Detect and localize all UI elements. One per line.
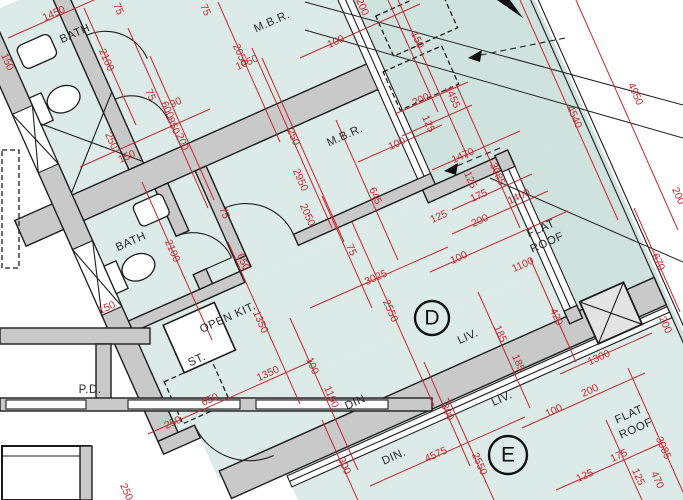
dimension-label: 250 <box>117 481 135 500</box>
unit-label-d: D <box>424 307 439 330</box>
lift-shaft-dashed <box>2 150 19 268</box>
unit-label-e: E <box>501 444 515 467</box>
corner-structure <box>2 446 92 500</box>
room-label: P.D. <box>79 384 102 396</box>
wall-pd-top <box>0 328 150 344</box>
rotated-building <box>0 0 683 500</box>
floor-plan-canvas: D E BATHM.B.R.M.B.R.BATHOPEN KIT.ST.P.D.… <box>0 0 683 500</box>
floor-plan-drawing: D E BATHM.B.R.M.B.R.BATHOPEN KIT.ST.P.D.… <box>0 0 683 500</box>
dimension-label: 4950 <box>625 81 646 107</box>
dimension-label: 200 <box>669 185 683 206</box>
